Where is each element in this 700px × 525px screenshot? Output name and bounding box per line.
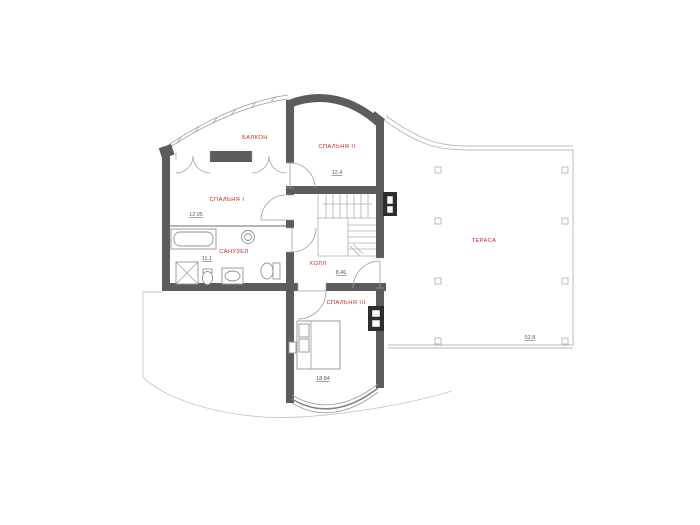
balcony-railing xyxy=(163,95,288,152)
bed xyxy=(297,321,340,369)
floor-plan-drawing: БАЛКОН СПАЛЬНЯ II СПАЛЬНЯ I САНУЗЕЛ ХОЛЛ… xyxy=(0,0,700,525)
flue-block-lower xyxy=(368,306,384,331)
room-labels: БАЛКОН СПАЛЬНЯ II СПАЛЬНЯ I САНУЗЕЛ ХОЛЛ… xyxy=(210,135,497,306)
room-label-bedroom3: СПАЛЬНЯ III xyxy=(326,300,365,306)
area-bedroom3: 18.84 xyxy=(316,376,330,382)
staircase xyxy=(318,194,376,256)
round-basin xyxy=(242,231,255,244)
bedroom1-door xyxy=(261,195,294,220)
flue-block-upper xyxy=(383,192,397,216)
room-label-bedroom1: СПАЛЬНЯ I xyxy=(210,197,245,203)
curved-window-band xyxy=(292,384,378,413)
area-bedroom1: 12.05 xyxy=(189,212,203,218)
vanity-sink xyxy=(222,268,243,284)
terrace-boundary xyxy=(384,116,573,348)
bidet xyxy=(203,269,213,285)
floor-plan-canvas: БАЛКОН СПАЛЬНЯ II СПАЛЬНЯ I САНУЗЕЛ ХОЛЛ… xyxy=(0,0,700,525)
area-hall: 8.46 xyxy=(336,270,347,276)
room-label-balcony: БАЛКОН xyxy=(242,135,268,141)
area-terrace: 52.8 xyxy=(525,335,536,341)
balcony-french-door-left xyxy=(176,152,210,173)
area-bathroom: 11.1 xyxy=(202,256,212,262)
bathtub xyxy=(171,229,216,249)
bathroom-door xyxy=(286,228,316,252)
room-label-bathroom: САНУЗЕЛ xyxy=(219,249,248,255)
room-label-hall: ХОЛЛ xyxy=(309,261,326,267)
terrace-posts xyxy=(435,167,568,344)
room-label-bedroom2: СПАЛЬНЯ II xyxy=(319,144,356,150)
nightstand xyxy=(289,342,296,353)
shower-cabin xyxy=(176,262,198,284)
toilet xyxy=(261,263,280,279)
bedroom3-door xyxy=(298,283,326,319)
room-label-terrace: ТЕРАСА xyxy=(472,238,497,244)
area-bedroom2: 12.4 xyxy=(332,170,343,176)
bedroom2-door xyxy=(286,163,315,188)
balcony-french-door-right xyxy=(252,152,286,173)
